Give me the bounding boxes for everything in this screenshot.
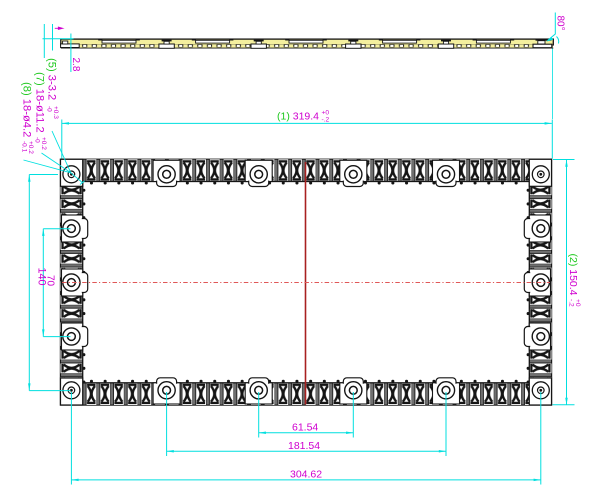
svg-text:(8) 18-ø4.2: (8) 18-ø4.2 — [21, 82, 33, 137]
svg-text:(5) 3-3.2: (5) 3-3.2 — [46, 58, 58, 100]
svg-text:-.2: -.2 — [568, 299, 575, 307]
svg-text:2.8: 2.8 — [70, 58, 81, 72]
svg-text:304.62: 304.62 — [290, 468, 322, 480]
svg-text:-0: -0 — [46, 106, 53, 112]
svg-text:(2) 150.4: (2) 150.4 — [567, 254, 579, 296]
svg-text:80°: 80° — [555, 16, 566, 31]
svg-text:-0.1: -0.1 — [21, 141, 28, 153]
svg-text:(7) 18-ø11.2: (7) 18-ø11.2 — [34, 72, 46, 133]
svg-text:181.54: 181.54 — [288, 440, 320, 452]
svg-text:(1) 319.4: (1) 319.4 — [277, 111, 319, 123]
svg-text:-.2: -.2 — [322, 117, 330, 124]
svg-text:140: 140 — [35, 268, 47, 286]
svg-text:61.54: 61.54 — [292, 421, 318, 433]
svg-text:+0: +0 — [322, 109, 330, 116]
